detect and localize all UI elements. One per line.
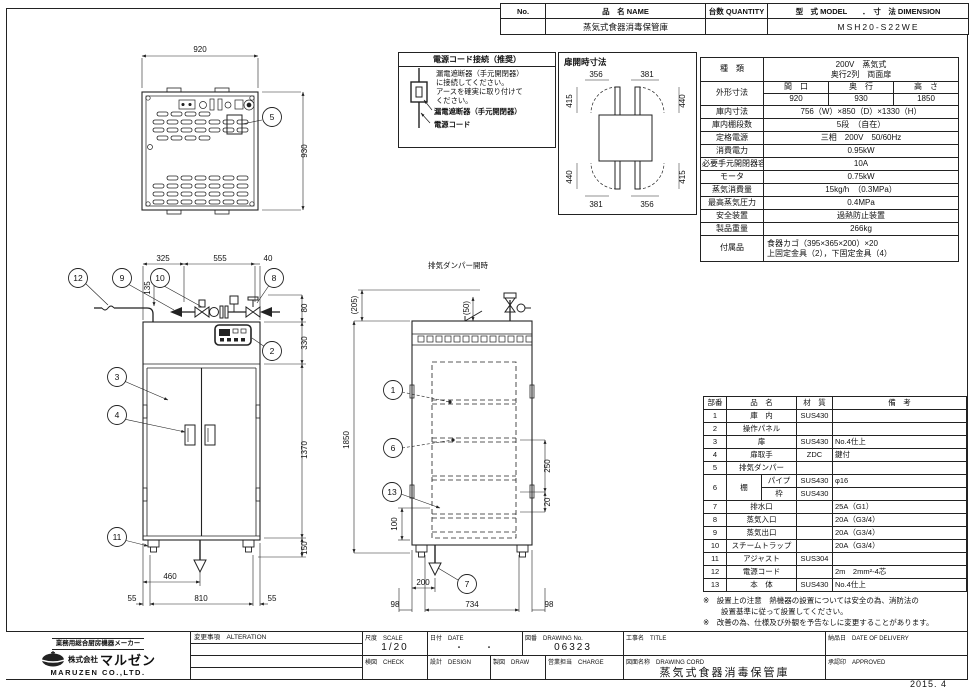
side-cabinet xyxy=(410,321,534,557)
dim-440-rt: 440 xyxy=(678,94,687,108)
part-material xyxy=(797,423,833,436)
parts-row: 8蒸気入口20A（G3/4） xyxy=(704,514,967,527)
balloon-2: 2 xyxy=(270,346,275,356)
breaker-label: 漏電遮断器（手元開閉器） xyxy=(434,107,522,117)
parts-row: 3扉SUS430No.4仕上 xyxy=(704,436,967,449)
balloon-7: 7 xyxy=(465,579,470,589)
dim-381-bl: 381 xyxy=(589,200,603,209)
dim-325: 325 xyxy=(156,254,170,263)
part-note: 25A（G1） xyxy=(833,501,967,514)
draw-label: 製図 DRAW xyxy=(491,656,545,666)
part-note: 20A（G3/4） xyxy=(833,540,967,553)
dim-1370: 1370 xyxy=(300,441,309,459)
spec-label: 定格電源 xyxy=(701,132,764,145)
top-view-louvers xyxy=(153,112,248,204)
dim-55-left: 55 xyxy=(128,594,137,603)
part-no: 8 xyxy=(704,514,727,527)
front-piping xyxy=(94,296,280,322)
door-open-dim-lines xyxy=(577,80,679,196)
parts-col-material: 材 質 xyxy=(797,397,833,410)
side-balloon-leaders xyxy=(401,392,458,580)
part-no: 9 xyxy=(704,527,727,540)
maker-tagline: 業務用総合厨房機器メーカー xyxy=(52,638,145,650)
drawing-no-cell: 図番 DRAWING No. 06323 xyxy=(522,632,623,655)
spec-label: 必要手元開閉器容量 xyxy=(701,158,764,171)
note-line: 設置基準に従って設置してください。 xyxy=(703,607,968,618)
dim-381-tr: 381 xyxy=(640,70,654,79)
part-name: 棚 xyxy=(727,475,762,501)
issue-date: 2015. 4 xyxy=(910,679,947,689)
charge-cell: 営業担当 CHARGE xyxy=(545,655,623,679)
drawing-no-value: 06323 xyxy=(523,642,623,653)
part-note: φ16 xyxy=(833,475,967,488)
parts-row: 5排気ダンパー xyxy=(704,462,967,475)
design-label: 設計 DESIGN xyxy=(428,656,490,666)
part-material: SUS430 xyxy=(797,475,833,488)
balloon-8: 8 xyxy=(272,273,277,283)
part-name: 庫 内 xyxy=(727,410,797,423)
part-material: SUS430 xyxy=(797,436,833,449)
part-name: 排気ダンパー xyxy=(727,462,797,475)
part-note xyxy=(833,410,967,423)
dim-460: 460 xyxy=(163,572,177,581)
part-note: No.4仕上 xyxy=(833,579,967,592)
spec-kind-line1: 200V 蒸気式 xyxy=(765,60,957,70)
power-note-title: 電源コード接続（推奨） xyxy=(399,53,555,67)
dim-810: 810 xyxy=(194,594,208,603)
part-no: 7 xyxy=(704,501,727,514)
spec-label: 安全装置 xyxy=(701,210,764,223)
parts-row: 4扉取手ZDC鍵付 xyxy=(704,449,967,462)
part-material xyxy=(797,501,833,514)
front-dim-lines xyxy=(136,264,306,606)
dim-330: 330 xyxy=(300,336,309,350)
front-view-drawing: 325 555 40 135 80 330 1370 150 460 55 81… xyxy=(58,250,326,622)
dim-50: (50) xyxy=(462,301,471,316)
dim-100: 100 xyxy=(390,517,399,531)
project-title-cell: 工事名 TITLE xyxy=(623,632,825,655)
part-note: 2m 2mm²-4芯 xyxy=(833,566,967,579)
part-material: SUS304 xyxy=(797,553,833,566)
part-no: 1 xyxy=(704,410,727,423)
title-block: 業務用総合厨房機器メーカー 株式会社 マルゼン MARUZEN CO.,LTD.… xyxy=(6,631,967,679)
balloon-9: 9 xyxy=(120,273,125,283)
header-no-value xyxy=(501,19,546,35)
part-no: 2 xyxy=(704,423,727,436)
installation-notes: ※ 設置上の注意 熱機器の設置については安全の為、消防法の 設置基準に従って設置… xyxy=(703,596,968,629)
delivery-date-label: 納品日 DATE OF DELIVERY xyxy=(826,632,967,642)
parts-row: 9蒸気出口20A（G3/4） xyxy=(704,527,967,540)
parts-row: 7排水口25A（G1） xyxy=(704,501,967,514)
drawing-name-value: 蒸気式食器消毒保管庫 xyxy=(624,664,825,680)
part-note: 鍵付 xyxy=(833,449,967,462)
part-no: 5 xyxy=(704,462,727,475)
alteration-label: 変更事項 ALTERATION xyxy=(191,632,362,644)
approved-label: 承認印 APPROVED xyxy=(826,656,967,666)
alteration-cell: 変更事項 ALTERATION xyxy=(190,632,362,679)
part-name: 扉取手 xyxy=(727,449,797,462)
spec-value: 0.95kW xyxy=(764,145,959,158)
part-material xyxy=(797,540,833,553)
front-control-panel xyxy=(215,325,251,345)
drawing-sheet: No. 品 名 NAME 台数 QUANTITY 型 式 MODEL ． 寸 法… xyxy=(0,0,975,692)
spec-label: モータ xyxy=(701,171,764,184)
dim-98-left: 98 xyxy=(391,600,400,609)
maker-cell: 業務用総合厨房機器メーカー 株式会社 マルゼン MARUZEN CO.,LTD. xyxy=(6,632,190,679)
part-no: 11 xyxy=(704,553,727,566)
parts-col-note: 備 考 xyxy=(833,397,967,410)
alteration-empty-row xyxy=(191,656,362,668)
part-no: 4 xyxy=(704,449,727,462)
balloon-12: 12 xyxy=(73,273,83,283)
date-label: 日付 DATE xyxy=(428,632,522,642)
spec-value: 0.4MPa xyxy=(764,197,959,210)
door-open-body xyxy=(599,87,652,189)
parts-row-shelf: 6 棚 パイプ SUS430 φ16 xyxy=(704,475,967,488)
draw-cell: 製図 DRAW xyxy=(490,655,545,679)
spec-kind-value: 200V 蒸気式 奥行2列 両面扉 xyxy=(764,58,959,82)
spec-label: 種 類 xyxy=(701,58,764,82)
balloon-11: 11 xyxy=(113,532,122,542)
dim-440-lb: 440 xyxy=(565,170,574,184)
dim-734: 734 xyxy=(465,600,479,609)
scale-label: 尺度 SCALE xyxy=(363,632,427,642)
parts-row: 1庫 内SUS430 xyxy=(704,410,967,423)
spec-label: 消費電力 xyxy=(701,145,764,158)
spec-value: 5段 （自在） xyxy=(764,119,959,132)
date-cell: 日付 DATE ・ ・ xyxy=(427,632,522,655)
dim-356-tl: 356 xyxy=(589,70,603,79)
side-view-drawing: 排気ダンパー開時 (50) (205) 1850 250 20 100 200 … xyxy=(340,250,585,630)
part-material: SUS430 xyxy=(797,488,833,501)
part-note: 20A（G3/4） xyxy=(833,527,967,540)
spec-acc-line1: 食器カゴ（395×365×200）×20 xyxy=(767,239,957,249)
header-table: No. 品 名 NAME 台数 QUANTITY 型 式 MODEL ． 寸 法… xyxy=(500,3,969,35)
spec-value: 三相 200V 50/60Hz xyxy=(764,132,959,145)
part-note xyxy=(833,488,967,501)
quantity-value xyxy=(706,19,768,35)
part-no: 3 xyxy=(704,436,727,449)
spec-value: 0.75kW xyxy=(764,171,959,184)
door-swing-arcs xyxy=(591,87,664,189)
spec-outer-val: 920 xyxy=(764,94,829,106)
part-material: SUS430 xyxy=(797,410,833,423)
spec-acc-line2: 上固定金具（2），下固定金具（4） xyxy=(767,249,957,259)
dim-205: (205) xyxy=(350,295,359,314)
part-name: 蒸気出口 xyxy=(727,527,797,540)
balloon-6: 6 xyxy=(391,443,396,453)
spec-value: 10A xyxy=(764,158,959,171)
product-name: 蒸気式食器消毒保管庫 xyxy=(546,19,706,35)
part-note: No.4仕上 xyxy=(833,436,967,449)
spec-value: 過熱防止装置 xyxy=(764,210,959,223)
part-material xyxy=(797,462,833,475)
part-name: 排水口 xyxy=(727,501,797,514)
part-no: 10 xyxy=(704,540,727,553)
design-cell: 設計 DESIGN xyxy=(427,655,490,679)
part-material xyxy=(797,527,833,540)
maker-prefix: 株式会社 xyxy=(68,654,98,665)
cord-label: 電源コード xyxy=(434,120,470,130)
spec-outer-col: 高 さ xyxy=(894,82,959,94)
side-balloons: 1 6 13 7 xyxy=(383,381,477,594)
power-cord-note: 電源コード接続（推奨） 漏電遮断器（手元開閉器） に接続してください。 アースを… xyxy=(398,52,556,148)
spec-outer-val: 1850 xyxy=(894,94,959,106)
parts-table: 部番 品 名 材 質 備 考 1庫 内SUS430 2操作パネル 3扉SUS43… xyxy=(703,396,967,592)
spec-label: 付属品 xyxy=(701,236,764,262)
dim-80: 80 xyxy=(300,303,309,312)
door-open-dimensions-box: 扉開時寸法 356 381 415 xyxy=(558,52,697,215)
part-name: アジャスト xyxy=(727,553,797,566)
dim-1850: 1850 xyxy=(342,431,351,449)
spec-table: 種 類 200V 蒸気式 奥行2列 両面扉 外形寸法 間 口 奥 行 高 さ 9… xyxy=(700,57,959,262)
approved-cell: 承認印 APPROVED xyxy=(825,655,967,679)
maker-brand: マルゼン xyxy=(100,650,156,669)
part-note xyxy=(833,553,967,566)
part-no: 13 xyxy=(704,579,727,592)
balloon-13: 13 xyxy=(387,487,397,497)
parts-row: 11アジャストSUS304 xyxy=(704,553,967,566)
part-material: ZDC xyxy=(797,449,833,462)
dim-150: 150 xyxy=(300,541,309,555)
spec-value: 266kg xyxy=(764,223,959,236)
check-label: 検図 CHECK xyxy=(363,656,427,666)
dim-250: 250 xyxy=(543,459,552,473)
spec-label: 庫内寸法 xyxy=(701,106,764,119)
header-col-name: 品 名 NAME xyxy=(546,4,706,19)
spec-outer-col: 奥 行 xyxy=(829,82,894,94)
dim-20: 20 xyxy=(543,497,552,506)
balloon-4: 4 xyxy=(115,410,120,420)
spec-label: 最高蒸気圧力 xyxy=(701,197,764,210)
alteration-empty-row xyxy=(191,668,362,679)
spec-label: 庫内棚段数 xyxy=(701,119,764,132)
top-view-drawing: 920 930 xyxy=(95,42,325,242)
spec-value: 756（W）×850（D）×1330（H） xyxy=(764,106,959,119)
balloon-10: 10 xyxy=(155,273,165,283)
drawing-name-cell: 図面名称 DRAWING CORD 蒸気式食器消毒保管庫 xyxy=(623,655,825,679)
part-material: SUS430 xyxy=(797,579,833,592)
header-col-model: 型 式 MODEL ． 寸 法 DIMENSION xyxy=(768,4,969,19)
dim-356-br: 356 xyxy=(640,200,654,209)
check-cell: 検図 CHECK xyxy=(362,655,427,679)
part-name: 操作パネル xyxy=(727,423,797,436)
dim-920: 920 xyxy=(193,45,207,54)
part-no: 12 xyxy=(704,566,727,579)
maruzen-logo-icon xyxy=(40,650,66,668)
spec-outer-val: 930 xyxy=(829,94,894,106)
spec-outer-col: 間 口 xyxy=(764,82,829,94)
model-number: MSH20-S22WE xyxy=(768,19,969,35)
part-name: 蒸気入口 xyxy=(727,514,797,527)
dim-40: 40 xyxy=(264,254,273,263)
dim-200: 200 xyxy=(416,578,430,587)
dim-135: 135 xyxy=(143,281,152,295)
project-title-label: 工事名 TITLE xyxy=(624,632,825,642)
spec-value: 15kg/h （0.3MPa） xyxy=(764,184,959,197)
dim-55-right: 55 xyxy=(268,594,277,603)
scale-cell: 尺度 SCALE 1/20 xyxy=(362,632,427,655)
part-subname: パイプ xyxy=(762,475,797,488)
damper-open-label: 排気ダンパー開時 xyxy=(428,260,488,270)
dim-555: 555 xyxy=(213,254,227,263)
part-no: 6 xyxy=(704,475,727,501)
parts-row: 10スチームトラップ20A（G3/4） xyxy=(704,540,967,553)
dim-930: 930 xyxy=(300,144,309,158)
side-piping xyxy=(504,293,531,321)
svg-text:5: 5 xyxy=(270,112,275,122)
spec-kind-line2: 奥行2列 両面扉 xyxy=(765,70,957,80)
part-name: スチームトラップ xyxy=(727,540,797,553)
part-note: 20A（G3/4） xyxy=(833,514,967,527)
note-line: ※ 改善の為、仕様及び外観を予告なしに変更することがあります。 xyxy=(703,618,968,629)
power-note-line: ください。 xyxy=(436,96,472,106)
spec-label: 製品重量 xyxy=(701,223,764,236)
balloon-1: 1 xyxy=(391,385,396,395)
spec-label: 蒸気消費量 xyxy=(701,184,764,197)
part-note xyxy=(833,423,967,436)
part-material xyxy=(797,566,833,579)
charge-label: 営業担当 CHARGE xyxy=(546,656,623,666)
parts-row: 12電源コード2m 2mm²-4芯 xyxy=(704,566,967,579)
front-cabinet xyxy=(143,322,260,552)
part-name: 本 体 xyxy=(727,579,797,592)
side-drain xyxy=(429,545,441,575)
parts-col-no: 部番 xyxy=(704,397,727,410)
door-open-drawing: 356 381 415 440 440 415 381 356 xyxy=(559,53,696,214)
part-subname: 枠 xyxy=(762,488,797,501)
side-interior-dashed xyxy=(432,362,516,538)
parts-row: 2操作パネル xyxy=(704,423,967,436)
date-value: ・ ・ xyxy=(428,642,522,653)
drawing-no-label: 図番 DRAWING No. xyxy=(523,632,623,642)
spec-label: 外形寸法 xyxy=(701,82,764,106)
header-col-qty: 台数 QUANTITY xyxy=(706,4,768,19)
side-louvers xyxy=(418,336,532,342)
parts-row: 13本 体SUS430No.4仕上 xyxy=(704,579,967,592)
delivery-date-cell: 納品日 DATE OF DELIVERY xyxy=(825,632,967,655)
spec-accessories: 食器カゴ（395×365×200）×20 上固定金具（2），下固定金具（4） xyxy=(764,236,959,262)
dim-98-right: 98 xyxy=(545,600,554,609)
parts-col-name: 品 名 xyxy=(727,397,797,410)
dim-415-rb: 415 xyxy=(678,170,687,184)
top-view-dimensions xyxy=(142,56,303,210)
alteration-empty-row xyxy=(191,644,362,656)
maker-en-name: MARUZEN CO.,LTD. xyxy=(6,668,190,677)
balloon-3: 3 xyxy=(115,372,120,382)
part-name: 電源コード xyxy=(727,566,797,579)
part-note xyxy=(833,462,967,475)
scale-value: 1/20 xyxy=(363,642,427,653)
dim-415-lt: 415 xyxy=(565,94,574,108)
header-col-no: No. xyxy=(501,4,546,19)
part-material xyxy=(797,514,833,527)
note-line: ※ 設置上の注意 熱機器の設置については安全の為、消防法の xyxy=(703,596,968,607)
part-name: 扉 xyxy=(727,436,797,449)
front-drain xyxy=(194,540,206,572)
